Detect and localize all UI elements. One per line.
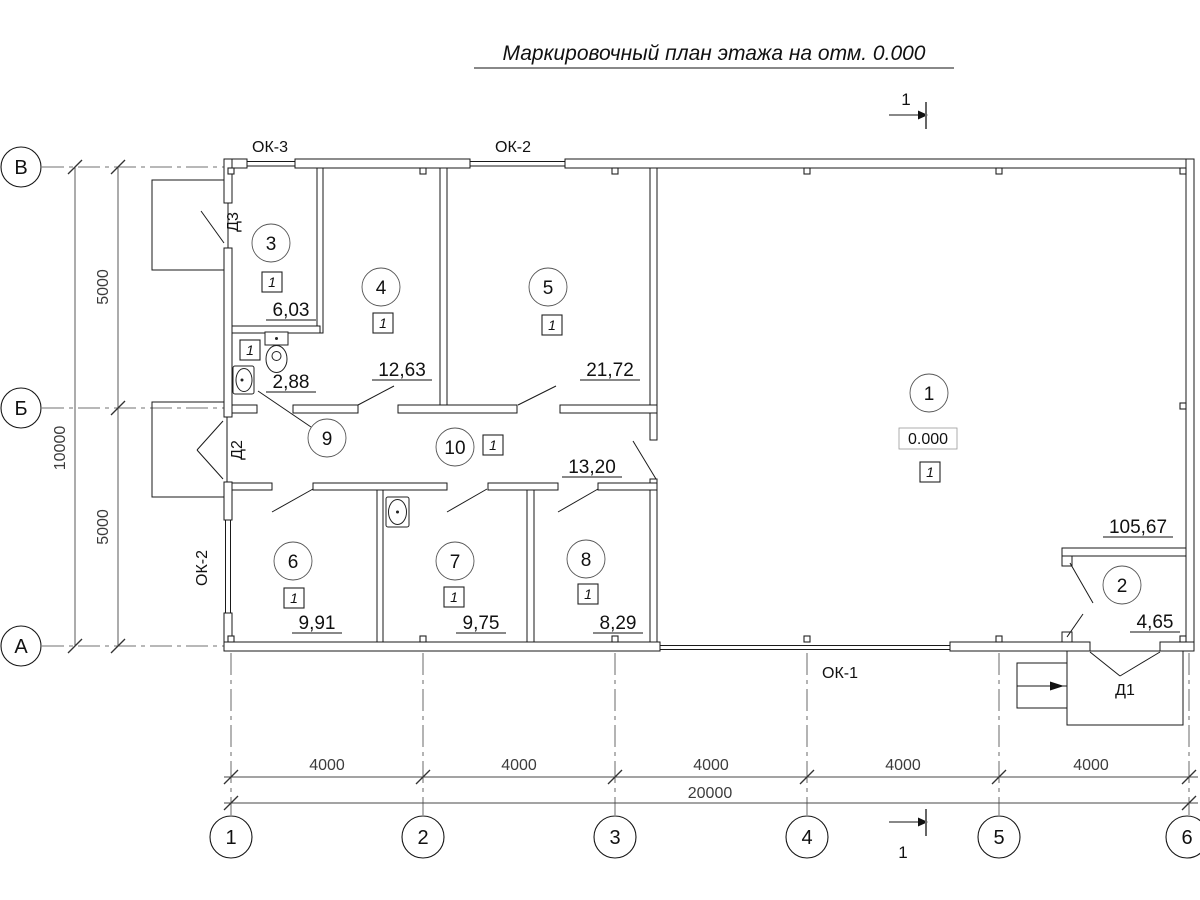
window-label-ok2-top: ОК-2 bbox=[495, 139, 531, 156]
wall-segment bbox=[598, 483, 657, 490]
axis-mark bbox=[804, 168, 810, 174]
porch-top-left bbox=[152, 180, 228, 270]
door-leaves bbox=[197, 211, 1160, 676]
axis-row-label: В bbox=[14, 157, 27, 179]
wall-segment bbox=[488, 483, 558, 490]
section-mark-top: 1 bbox=[889, 90, 928, 129]
room-number: 8 bbox=[581, 550, 592, 571]
dim-bay: 4000 bbox=[309, 757, 345, 774]
wall-segment bbox=[398, 405, 517, 413]
toilet-drain bbox=[272, 352, 281, 361]
window-label-ok1: ОК-1 bbox=[822, 665, 858, 682]
axis-mark bbox=[1180, 168, 1186, 174]
wall-segment bbox=[377, 490, 383, 642]
room-area: 12,63 bbox=[378, 360, 426, 381]
dim-bay: 4000 bbox=[501, 757, 537, 774]
wall-segment bbox=[224, 248, 232, 417]
wall-segment bbox=[440, 168, 447, 412]
axis-col-label: 3 bbox=[609, 827, 620, 849]
room-area: 9,91 bbox=[299, 613, 336, 634]
toilet-tank-dot bbox=[275, 337, 278, 340]
wall-segment bbox=[950, 642, 1090, 651]
floor-type: 1 bbox=[548, 317, 556, 333]
room-area: 9,75 bbox=[463, 613, 500, 634]
dim-bay: 4000 bbox=[693, 757, 729, 774]
toilet-icon bbox=[265, 332, 288, 373]
floor-type: 1 bbox=[584, 586, 592, 602]
axis-row-label: А bbox=[14, 636, 28, 658]
wall-segment bbox=[224, 482, 232, 520]
axis-mark bbox=[228, 636, 234, 642]
page-title: Маркировочный план этажа на отм. 0.000 bbox=[503, 42, 926, 65]
dim-left-total: 10000 bbox=[52, 426, 69, 471]
floor-plan-sheet: Маркировочный план этажа на отм. 0.000 1… bbox=[0, 0, 1200, 900]
wall-segment bbox=[232, 405, 257, 413]
wall-segment bbox=[1186, 159, 1194, 651]
room-area: 8,29 bbox=[600, 613, 637, 634]
floor-type: 1 bbox=[489, 437, 497, 453]
door-label-d1: Д1 bbox=[1115, 682, 1135, 699]
section-mark-bottom: 1 bbox=[889, 809, 928, 862]
door-label-d2: Д2 bbox=[229, 440, 246, 460]
sink-icon bbox=[386, 497, 409, 527]
wall-segment bbox=[650, 168, 657, 440]
exterior-walls bbox=[224, 159, 1194, 651]
axis-mark bbox=[228, 168, 234, 174]
door-leaf-room6 bbox=[272, 489, 313, 512]
window-label-ok3: ОК-3 bbox=[252, 139, 288, 156]
wall-segment bbox=[560, 405, 657, 413]
interior-walls bbox=[232, 168, 1186, 642]
axis-row-label: Б bbox=[14, 398, 27, 420]
door-leaf-d2 bbox=[197, 450, 223, 479]
door-leaf-room4 bbox=[358, 386, 394, 405]
room-number: 2 bbox=[1117, 576, 1128, 597]
wall-segment bbox=[317, 168, 323, 333]
room-area: 21,72 bbox=[586, 360, 634, 381]
door-label-d3: Д3 bbox=[225, 212, 242, 232]
wall-segment bbox=[650, 479, 657, 642]
axis-mark bbox=[1180, 403, 1186, 409]
axis-col-label: 4 bbox=[801, 827, 812, 849]
sink-drain-dot bbox=[396, 511, 399, 514]
room-number: 3 bbox=[266, 234, 277, 255]
section-label: 1 bbox=[898, 843, 907, 862]
floor-plan-drawing: Маркировочный план этажа на отм. 0.000 1… bbox=[0, 0, 1200, 900]
floor-type: 1 bbox=[268, 274, 276, 290]
door-leaf-room7 bbox=[447, 489, 487, 512]
wall-segment bbox=[293, 405, 358, 413]
door-leaf-room2 bbox=[1070, 563, 1093, 603]
wall-segment bbox=[224, 642, 660, 651]
axis-wall-marks bbox=[228, 168, 1186, 642]
axis-col-label: 1 bbox=[225, 827, 236, 849]
dim-left-upper: 5000 bbox=[95, 269, 112, 305]
wall-segment bbox=[232, 483, 272, 490]
dim-bay: 4000 bbox=[1073, 757, 1109, 774]
axis-col-label: 2 bbox=[417, 827, 428, 849]
door-leaf-d1 bbox=[1120, 652, 1160, 676]
room-number: 10 bbox=[444, 438, 465, 459]
room-area: 4,65 bbox=[1137, 612, 1174, 633]
room-number: 9 bbox=[322, 429, 333, 450]
floor-type: 1 bbox=[379, 315, 387, 331]
axis-mark bbox=[1180, 636, 1186, 642]
axis-mark bbox=[996, 636, 1002, 642]
window-label-ok2-left: ОК-2 bbox=[194, 550, 211, 586]
room-area: 6,03 bbox=[273, 300, 310, 321]
axis-mark bbox=[612, 636, 618, 642]
door-leaf-d2 bbox=[197, 421, 223, 450]
door-leaf-d3 bbox=[201, 211, 224, 243]
room-number: 7 bbox=[450, 552, 461, 573]
wall-segment bbox=[224, 159, 232, 203]
door-leaf-corridor bbox=[633, 441, 656, 479]
dim-total-bottom: 20000 bbox=[688, 785, 733, 802]
room-number: 5 bbox=[543, 278, 554, 299]
wall-segment bbox=[295, 159, 470, 168]
drawing-title: Маркировочный план этажа на отм. 0.000 bbox=[474, 42, 954, 68]
room-area: 13,20 bbox=[568, 457, 616, 478]
section-label: 1 bbox=[901, 90, 910, 109]
wall-segment bbox=[1062, 548, 1186, 556]
wall-segment bbox=[527, 490, 534, 642]
door-leaf-room5 bbox=[518, 386, 556, 405]
room-area: 105,67 bbox=[1109, 517, 1167, 538]
sink-basin bbox=[236, 369, 252, 392]
axis-mark bbox=[996, 168, 1002, 174]
door-leaf-d1 bbox=[1090, 652, 1120, 676]
room-area: 2,88 bbox=[273, 372, 310, 393]
axis-lines bbox=[42, 167, 1189, 815]
axis-mark bbox=[420, 168, 426, 174]
wall-segment bbox=[565, 159, 1194, 168]
level-mark: 0.000 bbox=[908, 431, 948, 448]
room-number: 6 bbox=[288, 552, 299, 573]
axis-mark bbox=[420, 636, 426, 642]
dim-bay: 4000 bbox=[885, 757, 921, 774]
axis-col-label: 6 bbox=[1181, 827, 1192, 849]
floor-type: 1 bbox=[450, 589, 458, 605]
axis-mark bbox=[804, 636, 810, 642]
door-leaf-room2 bbox=[1067, 614, 1083, 637]
wall-segment bbox=[1160, 642, 1194, 651]
floor-type: 1 bbox=[246, 342, 254, 358]
sink-icon bbox=[233, 366, 254, 394]
entrance-stairs bbox=[1017, 663, 1067, 708]
stairs-arrow-icon bbox=[1050, 682, 1064, 691]
axis-bubbles: В Б А 1 2 3 4 5 6 bbox=[1, 147, 1200, 858]
axis-mark bbox=[612, 168, 618, 174]
dim-left-lower: 5000 bbox=[95, 509, 112, 545]
porch-mid-left bbox=[152, 402, 227, 497]
floor-type: 1 bbox=[926, 464, 934, 480]
room-number: 1 bbox=[924, 384, 935, 405]
room-number: 4 bbox=[376, 278, 387, 299]
sink-drain-dot bbox=[241, 379, 244, 382]
door-leaf-room8 bbox=[558, 489, 598, 512]
floor-type: 1 bbox=[290, 590, 298, 606]
wall-segment bbox=[313, 483, 447, 490]
axis-col-label: 5 bbox=[993, 827, 1004, 849]
